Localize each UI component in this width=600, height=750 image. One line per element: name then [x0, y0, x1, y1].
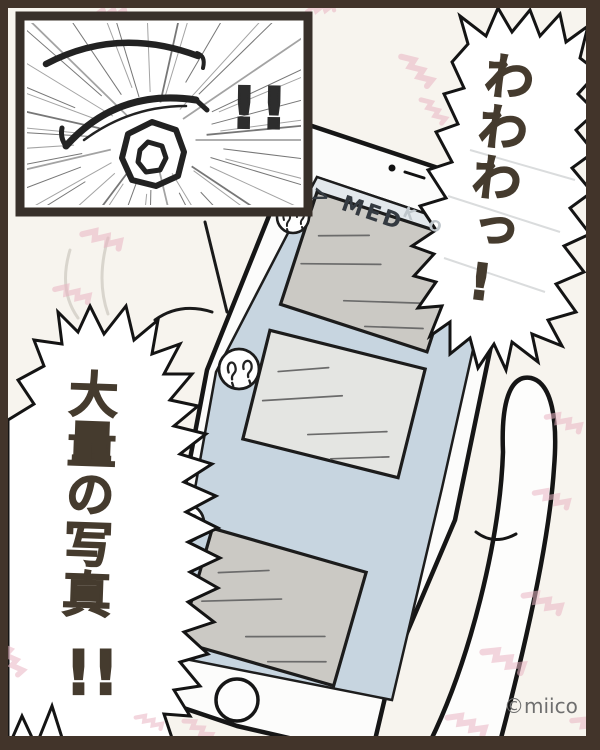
speech-text-left: 大量の写真: [55, 368, 115, 620]
speech-exclamation-left: !!: [66, 638, 120, 708]
inset-exclamation-text: !!: [230, 75, 291, 142]
home-button: [216, 679, 258, 721]
credit-text: ©miico: [504, 694, 578, 718]
comic-page: !! > MED KO わわわっ! 大量の写真 !! ©miico: [0, 0, 600, 750]
avatar-doodle-icon: [219, 349, 259, 389]
camera-icon: [389, 165, 396, 172]
